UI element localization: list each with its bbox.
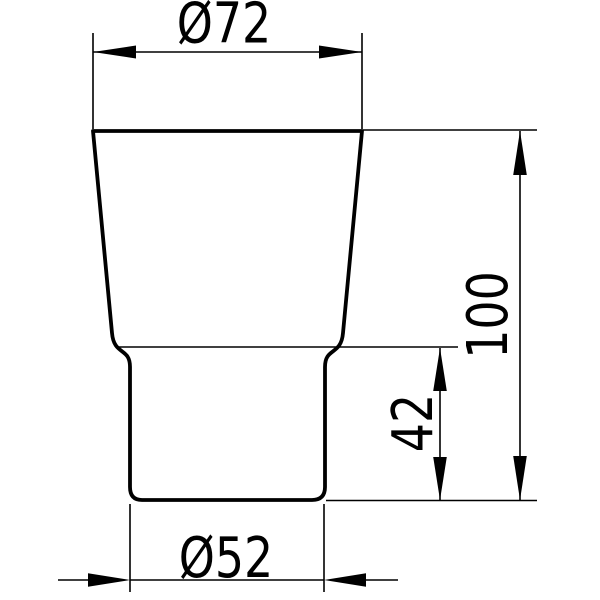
- cup-profile-outline: [93, 131, 362, 500]
- dim-label-base-height: 42: [381, 394, 447, 452]
- arrowhead-bottom: [513, 456, 527, 500]
- dim-label-overall-height: 100: [456, 271, 522, 359]
- technical-drawing-page: Ø72 100 42 Ø52: [0, 0, 600, 600]
- dim-label-top-diameter: Ø72: [177, 0, 272, 57]
- arrowhead-right: [319, 46, 362, 59]
- dimension-top-diameter: Ø72: [93, 0, 362, 129]
- technical-drawing-canvas: Ø72 100 42 Ø52: [0, 0, 600, 600]
- arrowhead-left: [93, 46, 136, 59]
- dimension-bottom-diameter: Ø52: [58, 504, 398, 592]
- arrowhead-top: [513, 131, 527, 175]
- arrowhead-top: [433, 348, 447, 391]
- arrowhead-right: [324, 573, 366, 587]
- arrowhead-left: [88, 573, 130, 587]
- dimension-base-height: 42: [381, 348, 447, 500]
- arrowhead-bottom: [433, 457, 447, 500]
- dim-label-bottom-diameter: Ø52: [179, 526, 274, 592]
